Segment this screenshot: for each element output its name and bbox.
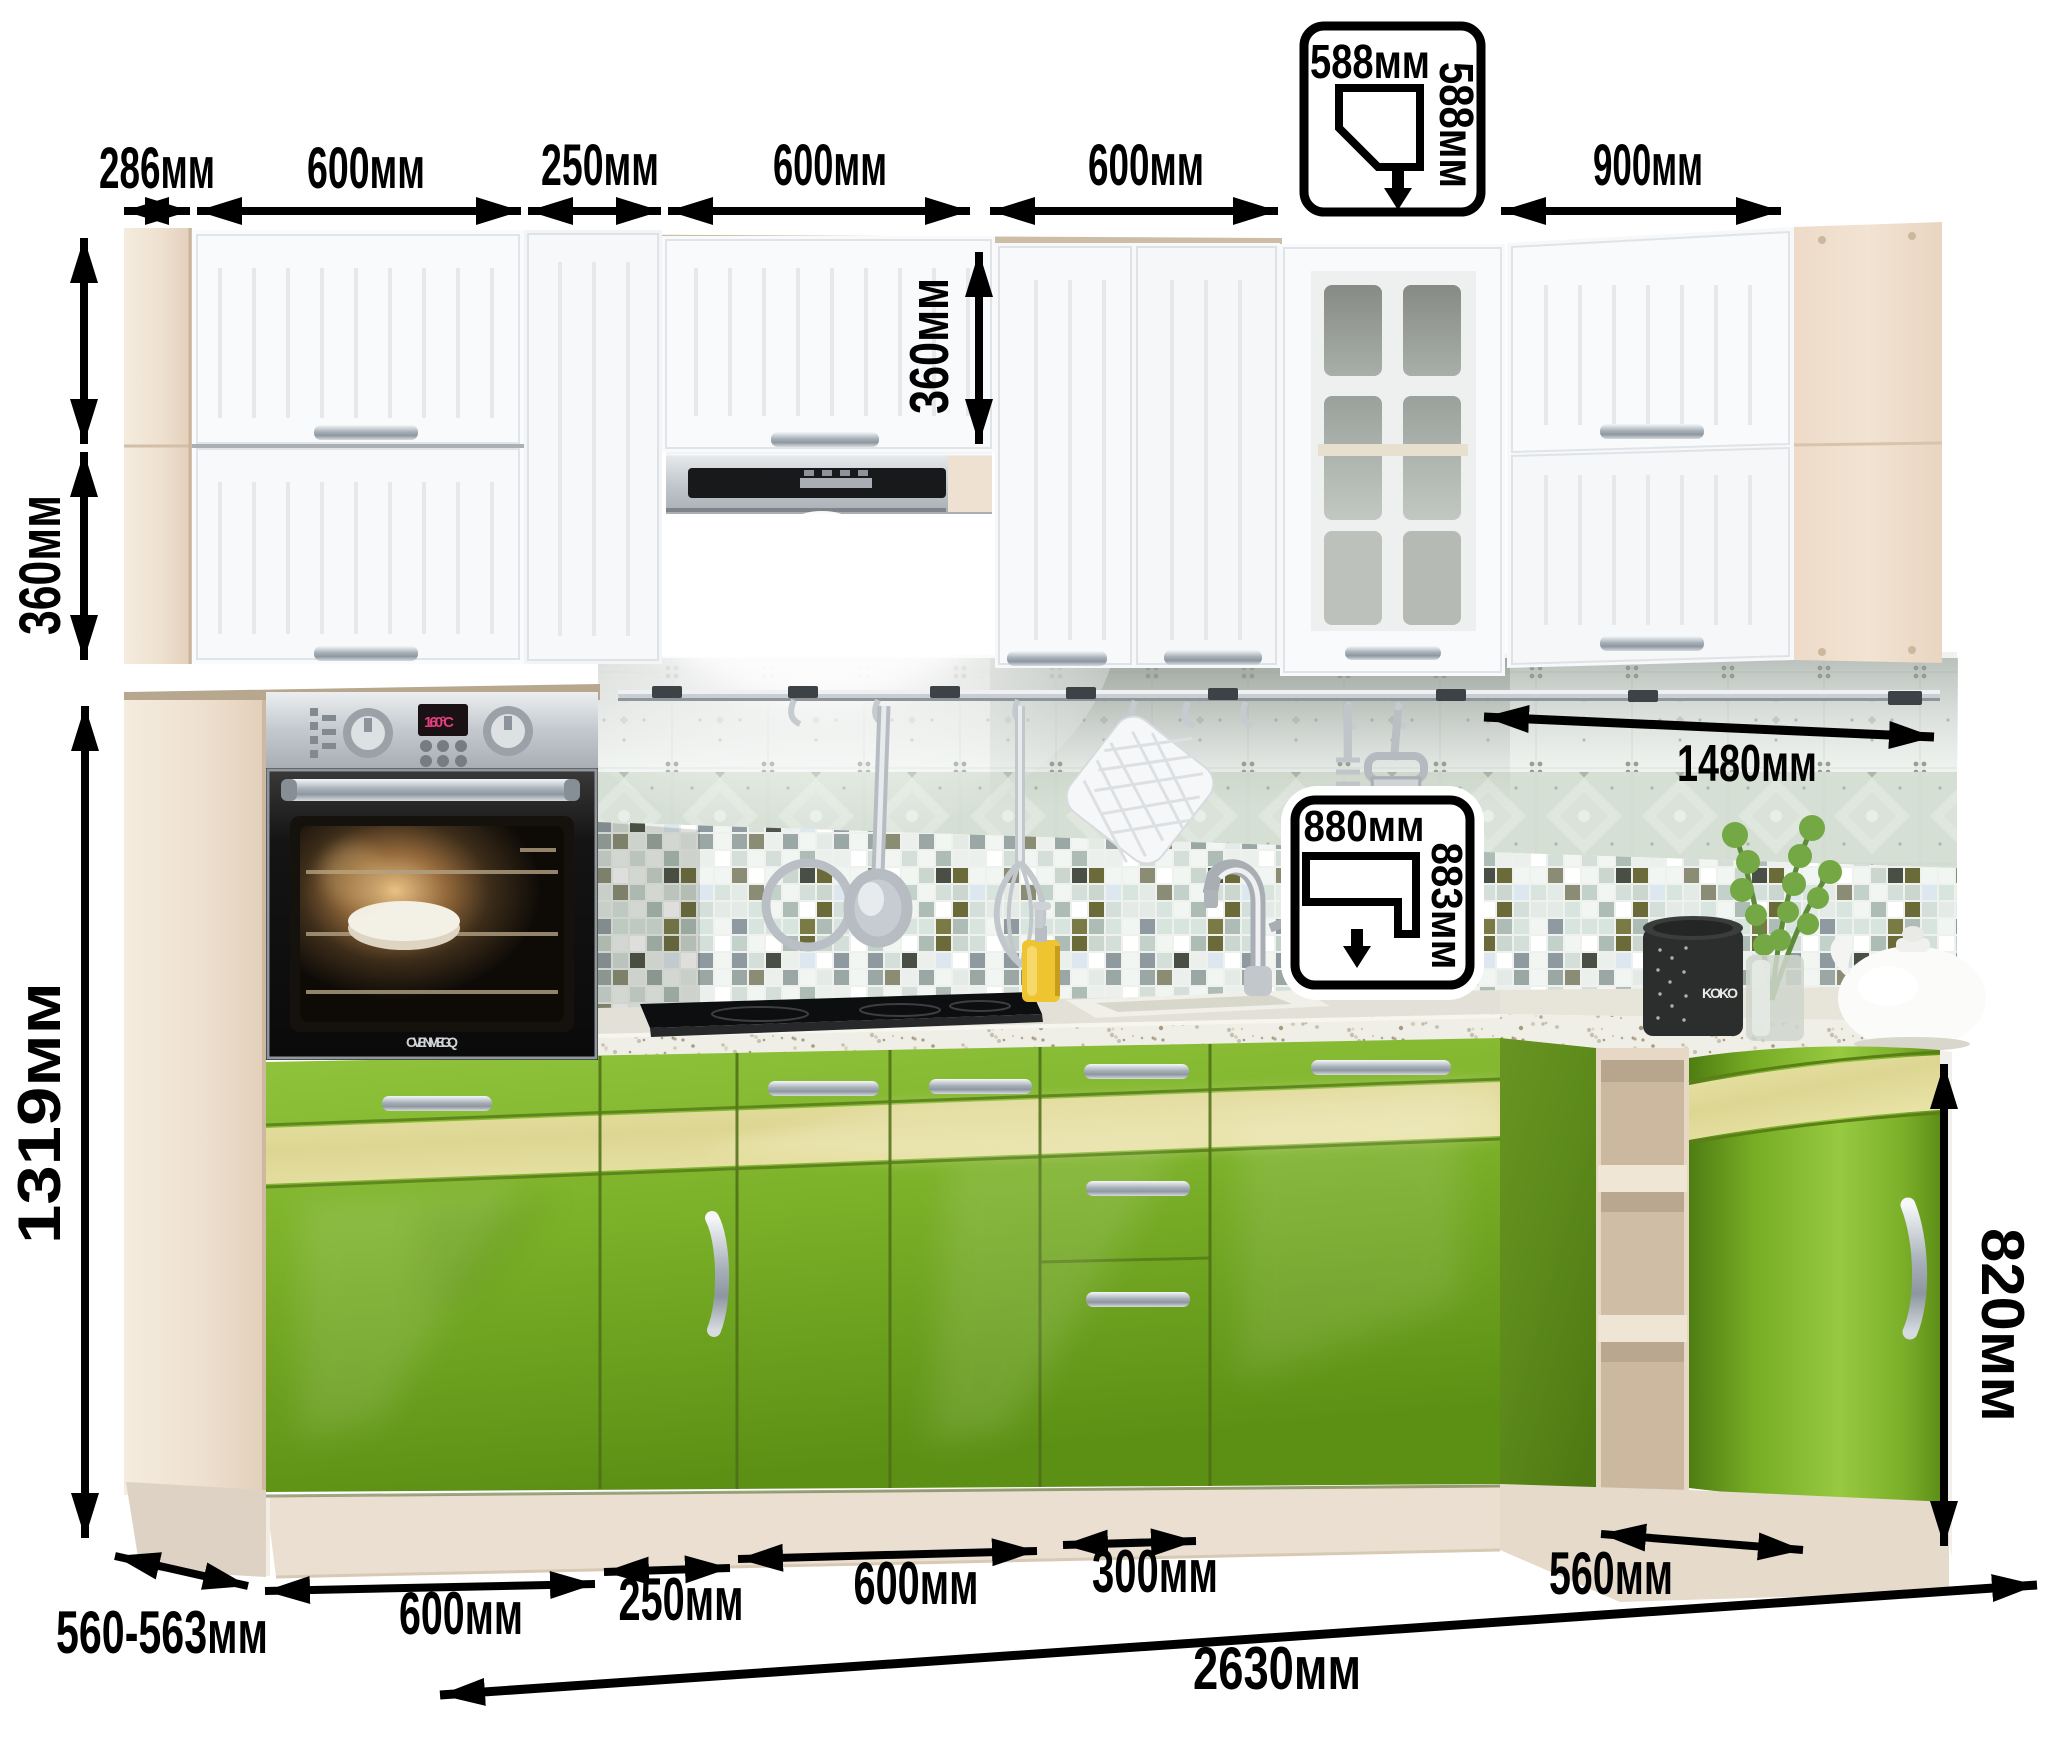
svg-text:300мм: 300мм	[1092, 1538, 1218, 1605]
svg-text:588мм: 588мм	[1429, 62, 1482, 188]
svg-text:1319мм: 1319мм	[6, 982, 73, 1244]
svg-text:KOKO: KOKO	[1702, 985, 1738, 1001]
svg-text:820мм: 820мм	[1969, 1228, 2036, 1422]
svg-text:360мм: 360мм	[8, 495, 73, 635]
svg-text:360мм: 360мм	[898, 278, 960, 414]
svg-text:600мм: 600мм	[1088, 133, 1204, 198]
svg-text:600мм: 600мм	[854, 1550, 979, 1617]
svg-text:600мм: 600мм	[773, 133, 887, 198]
svg-text:250мм: 250мм	[619, 1566, 744, 1633]
svg-text:600мм: 600мм	[399, 1580, 523, 1647]
svg-text:880мм: 880мм	[1304, 802, 1425, 851]
svg-text:OVEN MEGQ: OVEN MEGQ	[406, 1034, 458, 1050]
svg-text:1480мм: 1480мм	[1677, 735, 1817, 793]
svg-text:600мм: 600мм	[307, 136, 425, 201]
svg-text:286мм: 286мм	[99, 136, 215, 201]
svg-text:588мм: 588мм	[1310, 36, 1430, 89]
svg-text:2630мм: 2630мм	[1193, 1635, 1361, 1702]
svg-text:900мм: 900мм	[1593, 133, 1703, 198]
svg-text:883мм: 883мм	[1422, 843, 1471, 970]
svg-text:160°C: 160°C	[424, 714, 454, 731]
svg-text:560мм: 560мм	[1549, 1540, 1673, 1607]
svg-text:250мм: 250мм	[541, 133, 659, 198]
svg-text:560-563мм: 560-563мм	[56, 1599, 268, 1666]
